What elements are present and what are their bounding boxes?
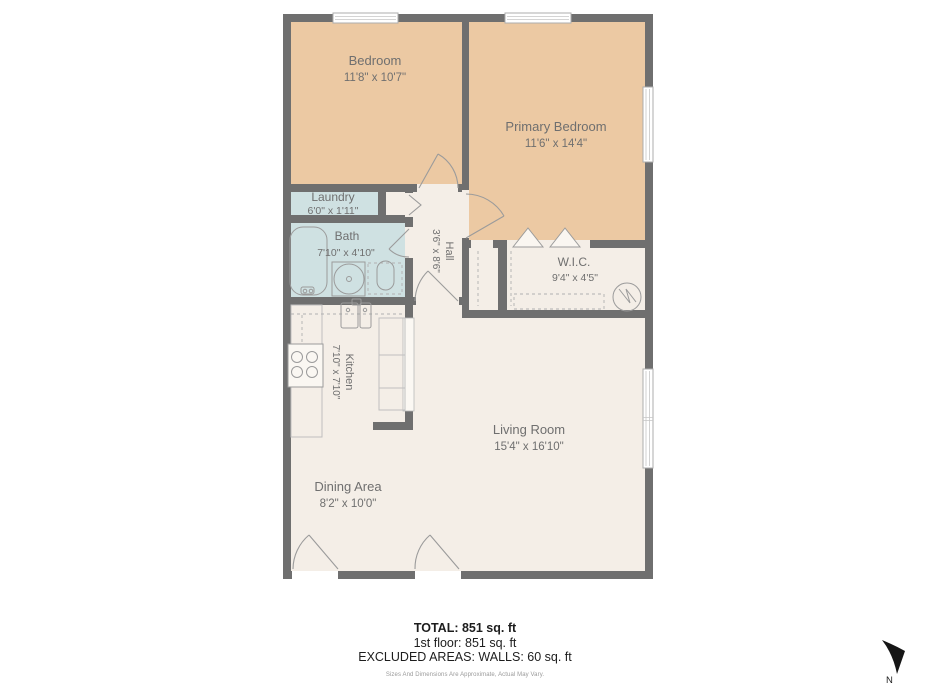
room-dims-primary-bedroom: 11'6" x 14'4" [525, 138, 587, 150]
window-primary-right [643, 87, 653, 162]
room-label-laundry: Laundry [311, 190, 354, 204]
room-dims-dining-area: 8'2" x 10'0" [320, 498, 377, 510]
wall-segment [283, 14, 291, 579]
room-dims-bath: 7'10" x 4'10" [317, 247, 375, 259]
wall-segment [283, 297, 413, 305]
door-opening [405, 193, 413, 217]
window-primary-top [505, 13, 571, 23]
excluded-areas: EXCLUDED AREAS: WALLS: 60 sq. ft [0, 650, 930, 665]
floor-plan: Bedroom 11'8" x 10'7" Primary Bedroom 11… [0, 0, 930, 600]
window-living-right [643, 369, 653, 468]
room-label-hall: Hall [443, 242, 455, 261]
entry-door-opening [292, 571, 338, 579]
north-arrow-icon [882, 640, 905, 674]
stove [288, 344, 323, 387]
room-dims-bedroom: 11'8" x 10'7" [344, 72, 406, 84]
door-opening [416, 297, 459, 305]
floor-plan-page: Bedroom 11'8" x 10'7" Primary Bedroom 11… [0, 0, 930, 697]
wall-segment [373, 422, 413, 430]
wall-segment [462, 14, 469, 318]
room-label-living-room: Living Room [493, 422, 565, 437]
window-bedroom [333, 13, 398, 23]
room-dims-kitchen: 7'10" x 7'10" [330, 345, 341, 400]
room-dims-laundry: 6'0" x 1'11" [308, 205, 359, 217]
room-label-kitchen: Kitchen [343, 354, 355, 391]
north-label: N [886, 675, 893, 686]
disclaimer-text: Sizes And Dimensions Are Approximate, Ac… [0, 672, 930, 678]
north-compass: N [872, 630, 918, 688]
room-dims-wic: 9'4" x 4'5" [552, 272, 598, 284]
entry-door-opening [415, 571, 461, 579]
room-label-bath: Bath [335, 229, 360, 243]
door-opening [417, 184, 458, 192]
area-summary: TOTAL: 851 sq. ft 1st floor: 851 sq. ft … [0, 621, 930, 678]
total-area: TOTAL: 851 sq. ft [0, 621, 930, 636]
wall-segment [283, 571, 653, 579]
room-label-dining-area: Dining Area [314, 479, 382, 494]
room-label-wic: W.I.C. [558, 255, 591, 269]
room-label-primary-bedroom: Primary Bedroom [505, 119, 606, 134]
first-floor-area: 1st floor: 851 sq. ft [0, 636, 930, 651]
wall-segment [498, 248, 507, 318]
room-dims-hall: 3'6" x 8'6" [430, 229, 441, 273]
door-opening [462, 190, 469, 238]
door-opening [471, 240, 493, 248]
room-label-bedroom: Bedroom [349, 53, 402, 68]
room-dims-living-room: 15'4" x 16'10" [494, 441, 563, 453]
